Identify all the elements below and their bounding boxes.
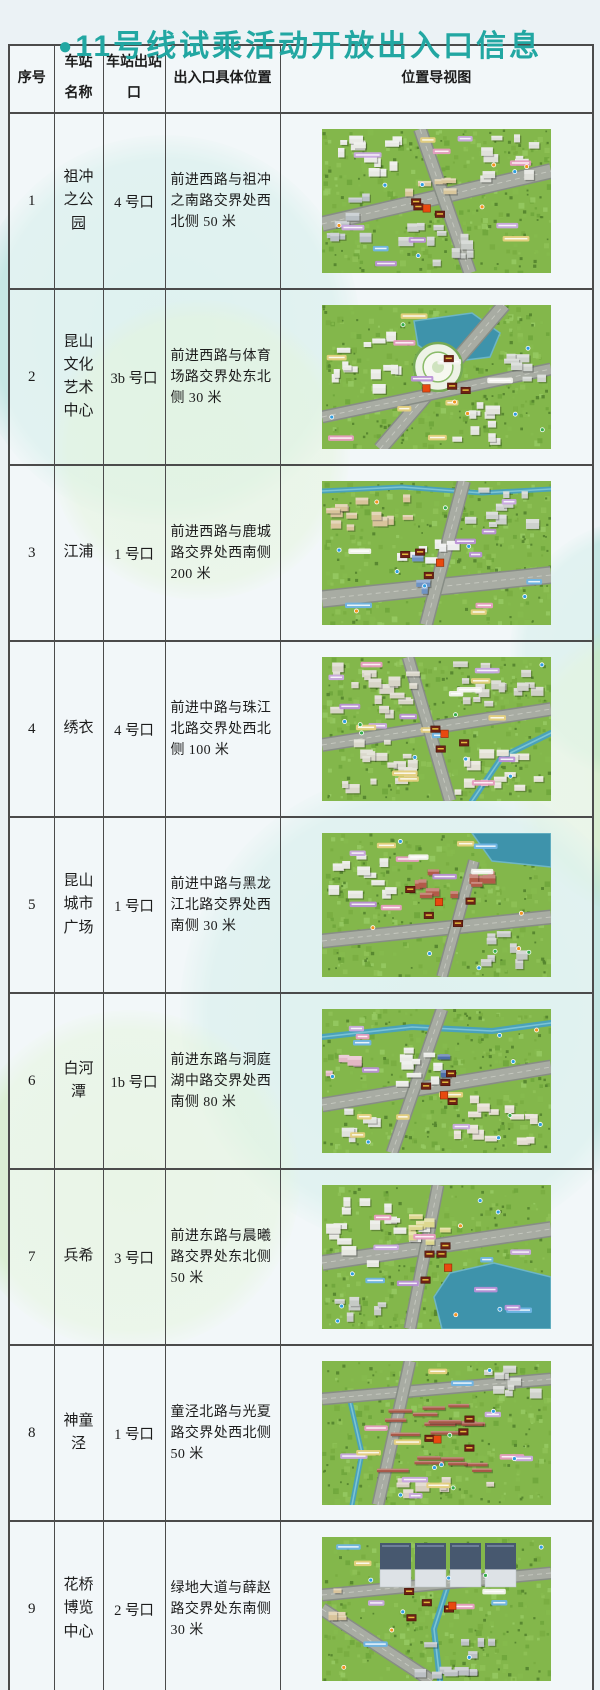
exit-location-cell: 绿地大道与薛赵路交界处东南侧 30 米 <box>165 1521 280 1690</box>
row-index-cell: 5 <box>9 817 54 993</box>
exit-location: 前进东路与晨曦路交界处东北侧 50 米 <box>171 1229 272 1286</box>
location-map-image <box>322 1537 551 1681</box>
exit-location: 前进中路与珠江北路交界处西北侧 100 米 <box>171 701 272 758</box>
exit-number-cell: 4 号口 <box>103 641 165 817</box>
row-index-cell: 9 <box>9 1521 54 1690</box>
location-map-image <box>322 1009 551 1153</box>
exit-number-cell: 1b 号口 <box>103 993 165 1169</box>
table-row: 8 神童泾 1 号口 童泾北路与光夏路交界处西北侧 50 米 <box>9 1345 593 1521</box>
exit-location: 前进中路与黑龙江北路交界处西南侧 30 米 <box>171 877 272 934</box>
exit-location-cell: 前进西路与鹿城路交界处西南侧 200 米 <box>165 465 280 641</box>
exit-location: 前进西路与祖冲之南路交界处西北侧 50 米 <box>171 173 272 230</box>
exit-number: 1b 号口 <box>110 1075 157 1091</box>
station-name: 兵希 <box>63 1248 93 1264</box>
exit-number: 3 号口 <box>114 1251 154 1267</box>
row-index-cell: 7 <box>9 1169 54 1345</box>
table-row: 1 祖冲之公园 4 号口 前进西路与祖冲之南路交界处西北侧 50 米 <box>9 113 593 289</box>
row-index-cell: 2 <box>9 289 54 465</box>
station-name: 白河潭 <box>63 1061 93 1100</box>
row-index: 7 <box>28 1249 36 1265</box>
exit-number-cell: 1 号口 <box>103 1345 165 1521</box>
station-name: 昆山城市广场 <box>63 873 93 936</box>
station-name: 昆山文化艺术中心 <box>63 334 93 420</box>
map-cell <box>280 1345 593 1521</box>
row-index: 6 <box>28 1073 36 1089</box>
location-map-image <box>322 833 551 977</box>
exit-number: 1 号口 <box>114 1427 154 1443</box>
exit-number-cell: 4 号口 <box>103 113 165 289</box>
location-map-image <box>322 129 551 273</box>
station-name-cell: 江浦 <box>54 465 103 641</box>
row-index-cell: 3 <box>9 465 54 641</box>
station-name-cell: 绣衣 <box>54 641 103 817</box>
exit-location: 前进西路与鹿城路交界处西南侧 200 米 <box>171 525 272 582</box>
row-index-cell: 6 <box>9 993 54 1169</box>
exit-number: 3b 号口 <box>110 371 157 387</box>
exit-number: 4 号口 <box>114 723 154 739</box>
exit-location: 童泾北路与光夏路交界处西北侧 50 米 <box>171 1405 272 1462</box>
table-row: 6 白河潭 1b 号口 前进东路与洞庭湖中路交界处西南侧 80 米 <box>9 993 593 1169</box>
station-name-cell: 花桥博览中心 <box>54 1521 103 1690</box>
page-title-text: 11号线试乘活动开放出入口信息 <box>75 30 542 63</box>
exit-location-cell: 前进中路与珠江北路交界处西北侧 100 米 <box>165 641 280 817</box>
exit-location-cell: 前进东路与晨曦路交界处东北侧 50 米 <box>165 1169 280 1345</box>
table-row: 4 绣衣 4 号口 前进中路与珠江北路交界处西北侧 100 米 <box>9 641 593 817</box>
station-name-cell: 祖冲之公园 <box>54 113 103 289</box>
map-cell <box>280 113 593 289</box>
row-index: 2 <box>28 369 36 385</box>
page: ●11号线试乘活动开放出入口信息 序号 车站名称 车站出站口 出入口具体位置 位… <box>0 0 600 1690</box>
row-index-cell: 1 <box>9 113 54 289</box>
entrance-info-table: 序号 车站名称 车站出站口 出入口具体位置 位置导视图 1 祖冲之公园 4 号口… <box>8 44 594 1690</box>
station-name-cell: 昆山文化艺术中心 <box>54 289 103 465</box>
location-map-image <box>322 305 551 449</box>
map-cell <box>280 817 593 993</box>
table-row: 7 兵希 3 号口 前进东路与晨曦路交界处东北侧 50 米 <box>9 1169 593 1345</box>
row-index: 5 <box>28 897 36 913</box>
station-name: 花桥博览中心 <box>63 1577 93 1640</box>
location-map-image <box>322 481 551 625</box>
station-name: 绣衣 <box>63 720 93 736</box>
location-map-image <box>322 1361 551 1505</box>
exit-number-cell: 1 号口 <box>103 465 165 641</box>
exit-location-cell: 童泾北路与光夏路交界处西北侧 50 米 <box>165 1345 280 1521</box>
exit-number-cell: 3b 号口 <box>103 289 165 465</box>
page-title: ●11号线试乘活动开放出入口信息 <box>0 21 600 65</box>
map-cell <box>280 289 593 465</box>
row-index: 4 <box>28 721 36 737</box>
bullet-icon: ● <box>58 33 73 60</box>
exit-number: 4 号口 <box>114 195 154 211</box>
row-index: 9 <box>28 1601 36 1617</box>
exit-location-cell: 前进西路与体育场路交界处东北侧 30 米 <box>165 289 280 465</box>
row-index: 1 <box>28 193 36 209</box>
map-cell <box>280 993 593 1169</box>
exit-number-cell: 3 号口 <box>103 1169 165 1345</box>
exit-location: 前进西路与体育场路交界处东北侧 30 米 <box>171 349 272 406</box>
map-cell <box>280 1169 593 1345</box>
map-cell <box>280 1521 593 1690</box>
map-cell <box>280 641 593 817</box>
table-row: 9 花桥博览中心 2 号口 绿地大道与薛赵路交界处东南侧 30 米 <box>9 1521 593 1690</box>
table-row: 2 昆山文化艺术中心 3b 号口 前进西路与体育场路交界处东北侧 30 米 <box>9 289 593 465</box>
location-map-image <box>322 1185 551 1329</box>
exit-number-cell: 2 号口 <box>103 1521 165 1690</box>
row-index-cell: 4 <box>9 641 54 817</box>
station-name-cell: 兵希 <box>54 1169 103 1345</box>
row-index-cell: 8 <box>9 1345 54 1521</box>
exit-number: 1 号口 <box>114 899 154 915</box>
station-name: 祖冲之公园 <box>63 169 93 232</box>
station-name: 神童泾 <box>63 1413 93 1452</box>
table-row: 5 昆山城市广场 1 号口 前进中路与黑龙江北路交界处西南侧 30 米 <box>9 817 593 993</box>
map-cell <box>280 465 593 641</box>
station-name: 江浦 <box>63 544 93 560</box>
exit-number: 2 号口 <box>114 1603 154 1619</box>
location-map-image <box>322 657 551 801</box>
exit-location: 绿地大道与薛赵路交界处东南侧 30 米 <box>171 1581 272 1638</box>
station-name-cell: 昆山城市广场 <box>54 817 103 993</box>
exit-number: 1 号口 <box>114 547 154 563</box>
station-name-cell: 白河潭 <box>54 993 103 1169</box>
exit-location-cell: 前进中路与黑龙江北路交界处西南侧 30 米 <box>165 817 280 993</box>
exit-location-cell: 前进西路与祖冲之南路交界处西北侧 50 米 <box>165 113 280 289</box>
table-row: 3 江浦 1 号口 前进西路与鹿城路交界处西南侧 200 米 <box>9 465 593 641</box>
row-index: 3 <box>28 545 36 561</box>
exit-location-cell: 前进东路与洞庭湖中路交界处西南侧 80 米 <box>165 993 280 1169</box>
row-index: 8 <box>28 1425 36 1441</box>
exit-location: 前进东路与洞庭湖中路交界处西南侧 80 米 <box>171 1053 272 1110</box>
exit-number-cell: 1 号口 <box>103 817 165 993</box>
station-name-cell: 神童泾 <box>54 1345 103 1521</box>
